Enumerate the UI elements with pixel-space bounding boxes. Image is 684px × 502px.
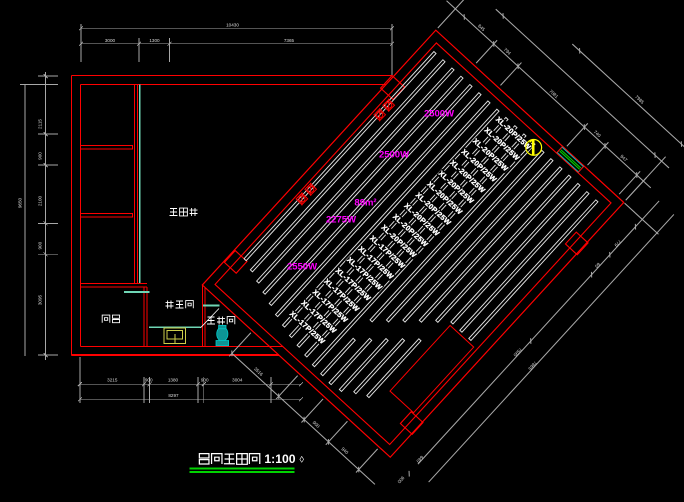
svg-text:2275W: 2275W <box>326 215 356 226</box>
svg-text:1380: 1380 <box>168 378 179 383</box>
svg-text:◊: ◊ <box>300 455 305 465</box>
svg-text:10430: 10430 <box>226 23 239 28</box>
svg-text:8297: 8297 <box>168 393 179 398</box>
svg-text:900: 900 <box>38 152 43 160</box>
svg-text:3095: 3095 <box>38 294 43 305</box>
svg-text:900: 900 <box>38 241 43 249</box>
svg-text:900: 900 <box>145 378 153 383</box>
svg-text:1:100: 1:100 <box>264 452 295 466</box>
svg-text:2500W: 2500W <box>424 109 454 120</box>
svg-text:9650: 9650 <box>18 197 23 208</box>
svg-text:2115: 2115 <box>38 119 43 129</box>
svg-text:900: 900 <box>201 378 209 383</box>
svg-text:89m²: 89m² <box>354 198 376 209</box>
svg-text:3004: 3004 <box>232 378 243 383</box>
svg-text:2100: 2100 <box>38 195 43 206</box>
svg-text:3000: 3000 <box>105 38 116 43</box>
svg-text:2550W: 2550W <box>287 262 317 273</box>
svg-text:1300: 1300 <box>149 38 160 43</box>
svg-text:3215: 3215 <box>107 378 118 383</box>
svg-text:2500W: 2500W <box>379 150 409 161</box>
svg-text:7365: 7365 <box>284 38 295 43</box>
